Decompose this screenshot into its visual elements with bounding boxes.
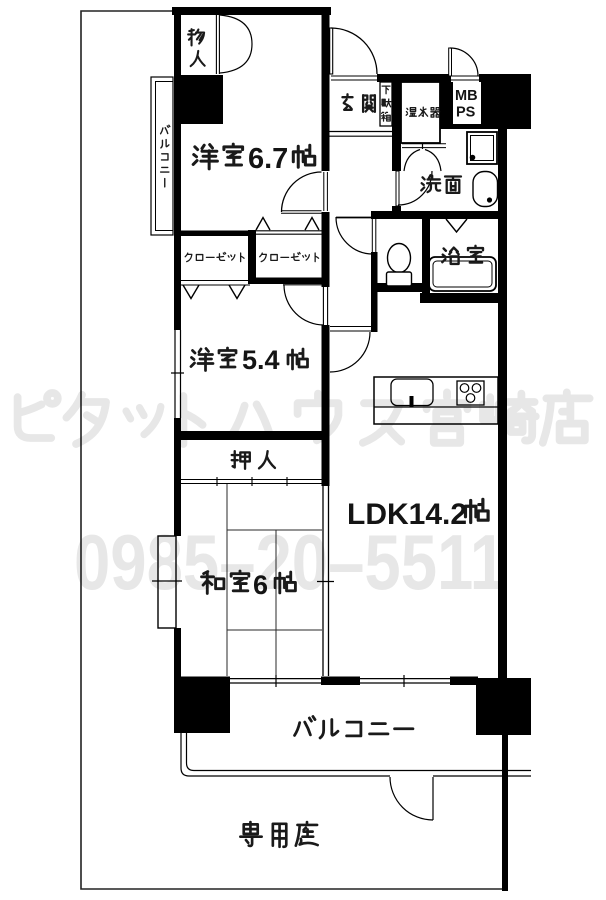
svg-text:0985–20–5511: 0985–20–5511	[74, 518, 506, 606]
svg-text:6.7: 6.7	[248, 143, 288, 175]
svg-text:PS: PS	[456, 105, 476, 121]
svg-text:5.4: 5.4	[242, 345, 280, 375]
svg-text:MB: MB	[455, 88, 478, 104]
